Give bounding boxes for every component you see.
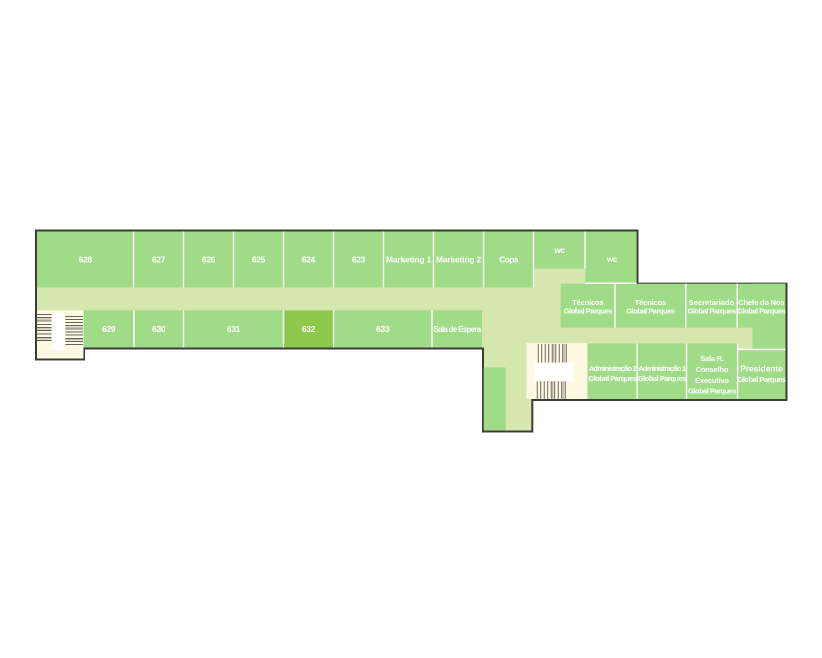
svg-text:Administração 1: Administração 1 [638,364,686,373]
svg-text:Global Parques: Global Parques [737,307,785,316]
svg-text:632: 632 [302,324,316,334]
svg-text:Global Parques: Global Parques [588,374,636,383]
svg-text:Global Parques: Global Parques [626,307,674,316]
svg-text:wc: wc [606,255,618,264]
svg-text:Global Parques: Global Parques [688,387,736,396]
svg-text:Marketing 1: Marketing 1 [386,255,432,265]
svg-text:Sala de Espera: Sala de Espera [433,325,481,334]
svg-text:Marketing 2: Marketing 2 [436,255,482,265]
svg-text:625: 625 [252,255,266,265]
svg-text:631: 631 [227,324,241,334]
svg-text:628: 628 [79,255,93,265]
svg-text:Sala R.: Sala R. [700,354,724,363]
svg-text:623: 623 [352,255,366,265]
svg-text:Global Parques: Global Parques [687,307,735,316]
svg-text:Conselho: Conselho [696,365,729,374]
svg-text:wc: wc [553,246,565,255]
svg-text:633: 633 [376,324,390,334]
svg-text:627: 627 [152,255,166,265]
svg-text:Copa: Copa [499,255,519,265]
svg-text:630: 630 [152,324,166,334]
svg-text:Executivo: Executivo [695,376,729,385]
svg-text:Global Parques: Global Parques [737,375,785,384]
svg-text:Administração 2: Administração 2 [589,364,637,373]
svg-text:Presidente: Presidente [740,364,783,374]
svg-text:624: 624 [302,255,316,265]
svg-text:Global Parques: Global Parques [638,374,686,383]
svg-text:629: 629 [102,324,116,334]
svg-text:Global Parques: Global Parques [564,307,612,316]
svg-text:626: 626 [202,255,216,265]
